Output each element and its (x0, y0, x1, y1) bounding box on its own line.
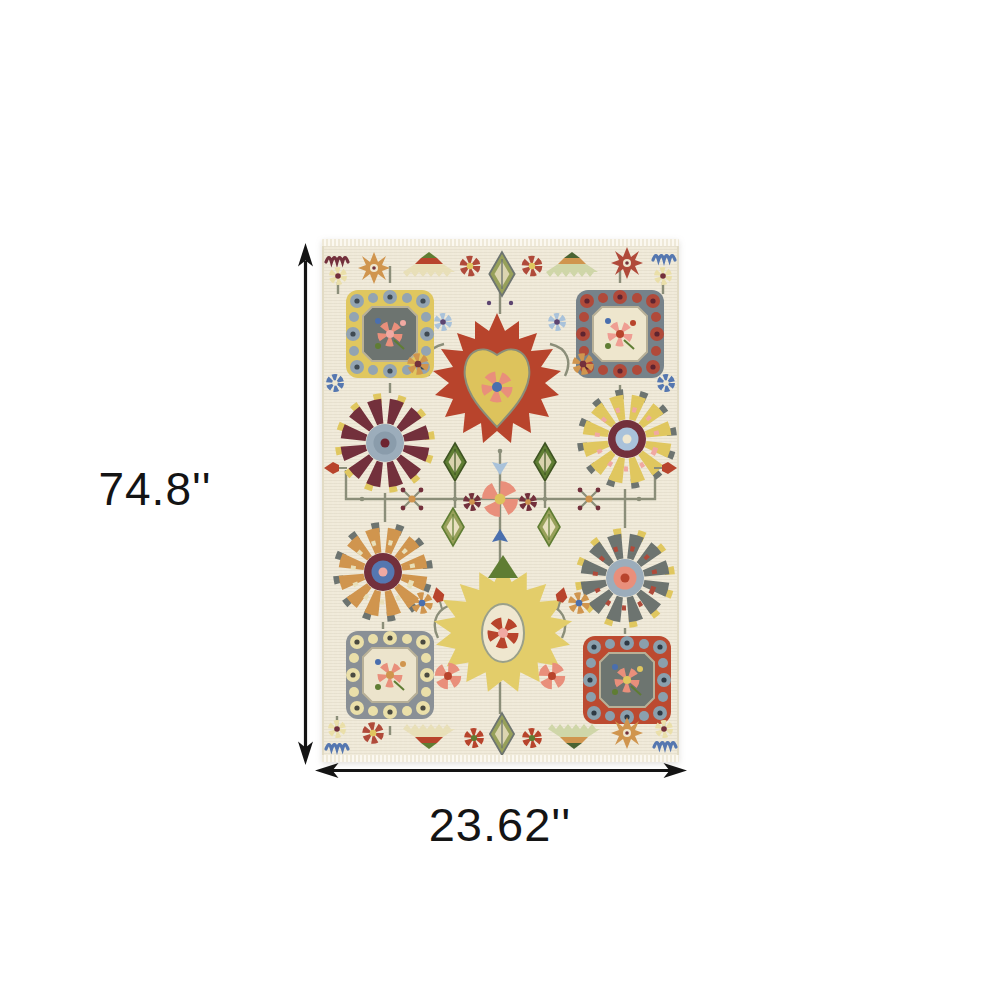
height-label: 74.8'' (52, 462, 258, 516)
rug-field (322, 246, 679, 755)
pinwheel-gray (570, 523, 679, 633)
rug-image (322, 239, 679, 762)
pinwheel-gold (572, 384, 679, 494)
rug-pattern (322, 246, 679, 755)
medallion-bottom-right (583, 636, 671, 724)
product-dimension-diagram: 74.8'' 23.62'' (0, 0, 1000, 1000)
medallion-bottom-left (346, 631, 434, 719)
height-dimension-arrow (298, 243, 313, 765)
rug-fringe-bottom (322, 755, 679, 762)
rug-fringe-top (322, 239, 679, 246)
red-palmette (433, 313, 561, 443)
border-motifs-top (326, 247, 675, 296)
width-dimension-arrow (315, 763, 687, 778)
width-label: 23.62'' (372, 797, 628, 852)
